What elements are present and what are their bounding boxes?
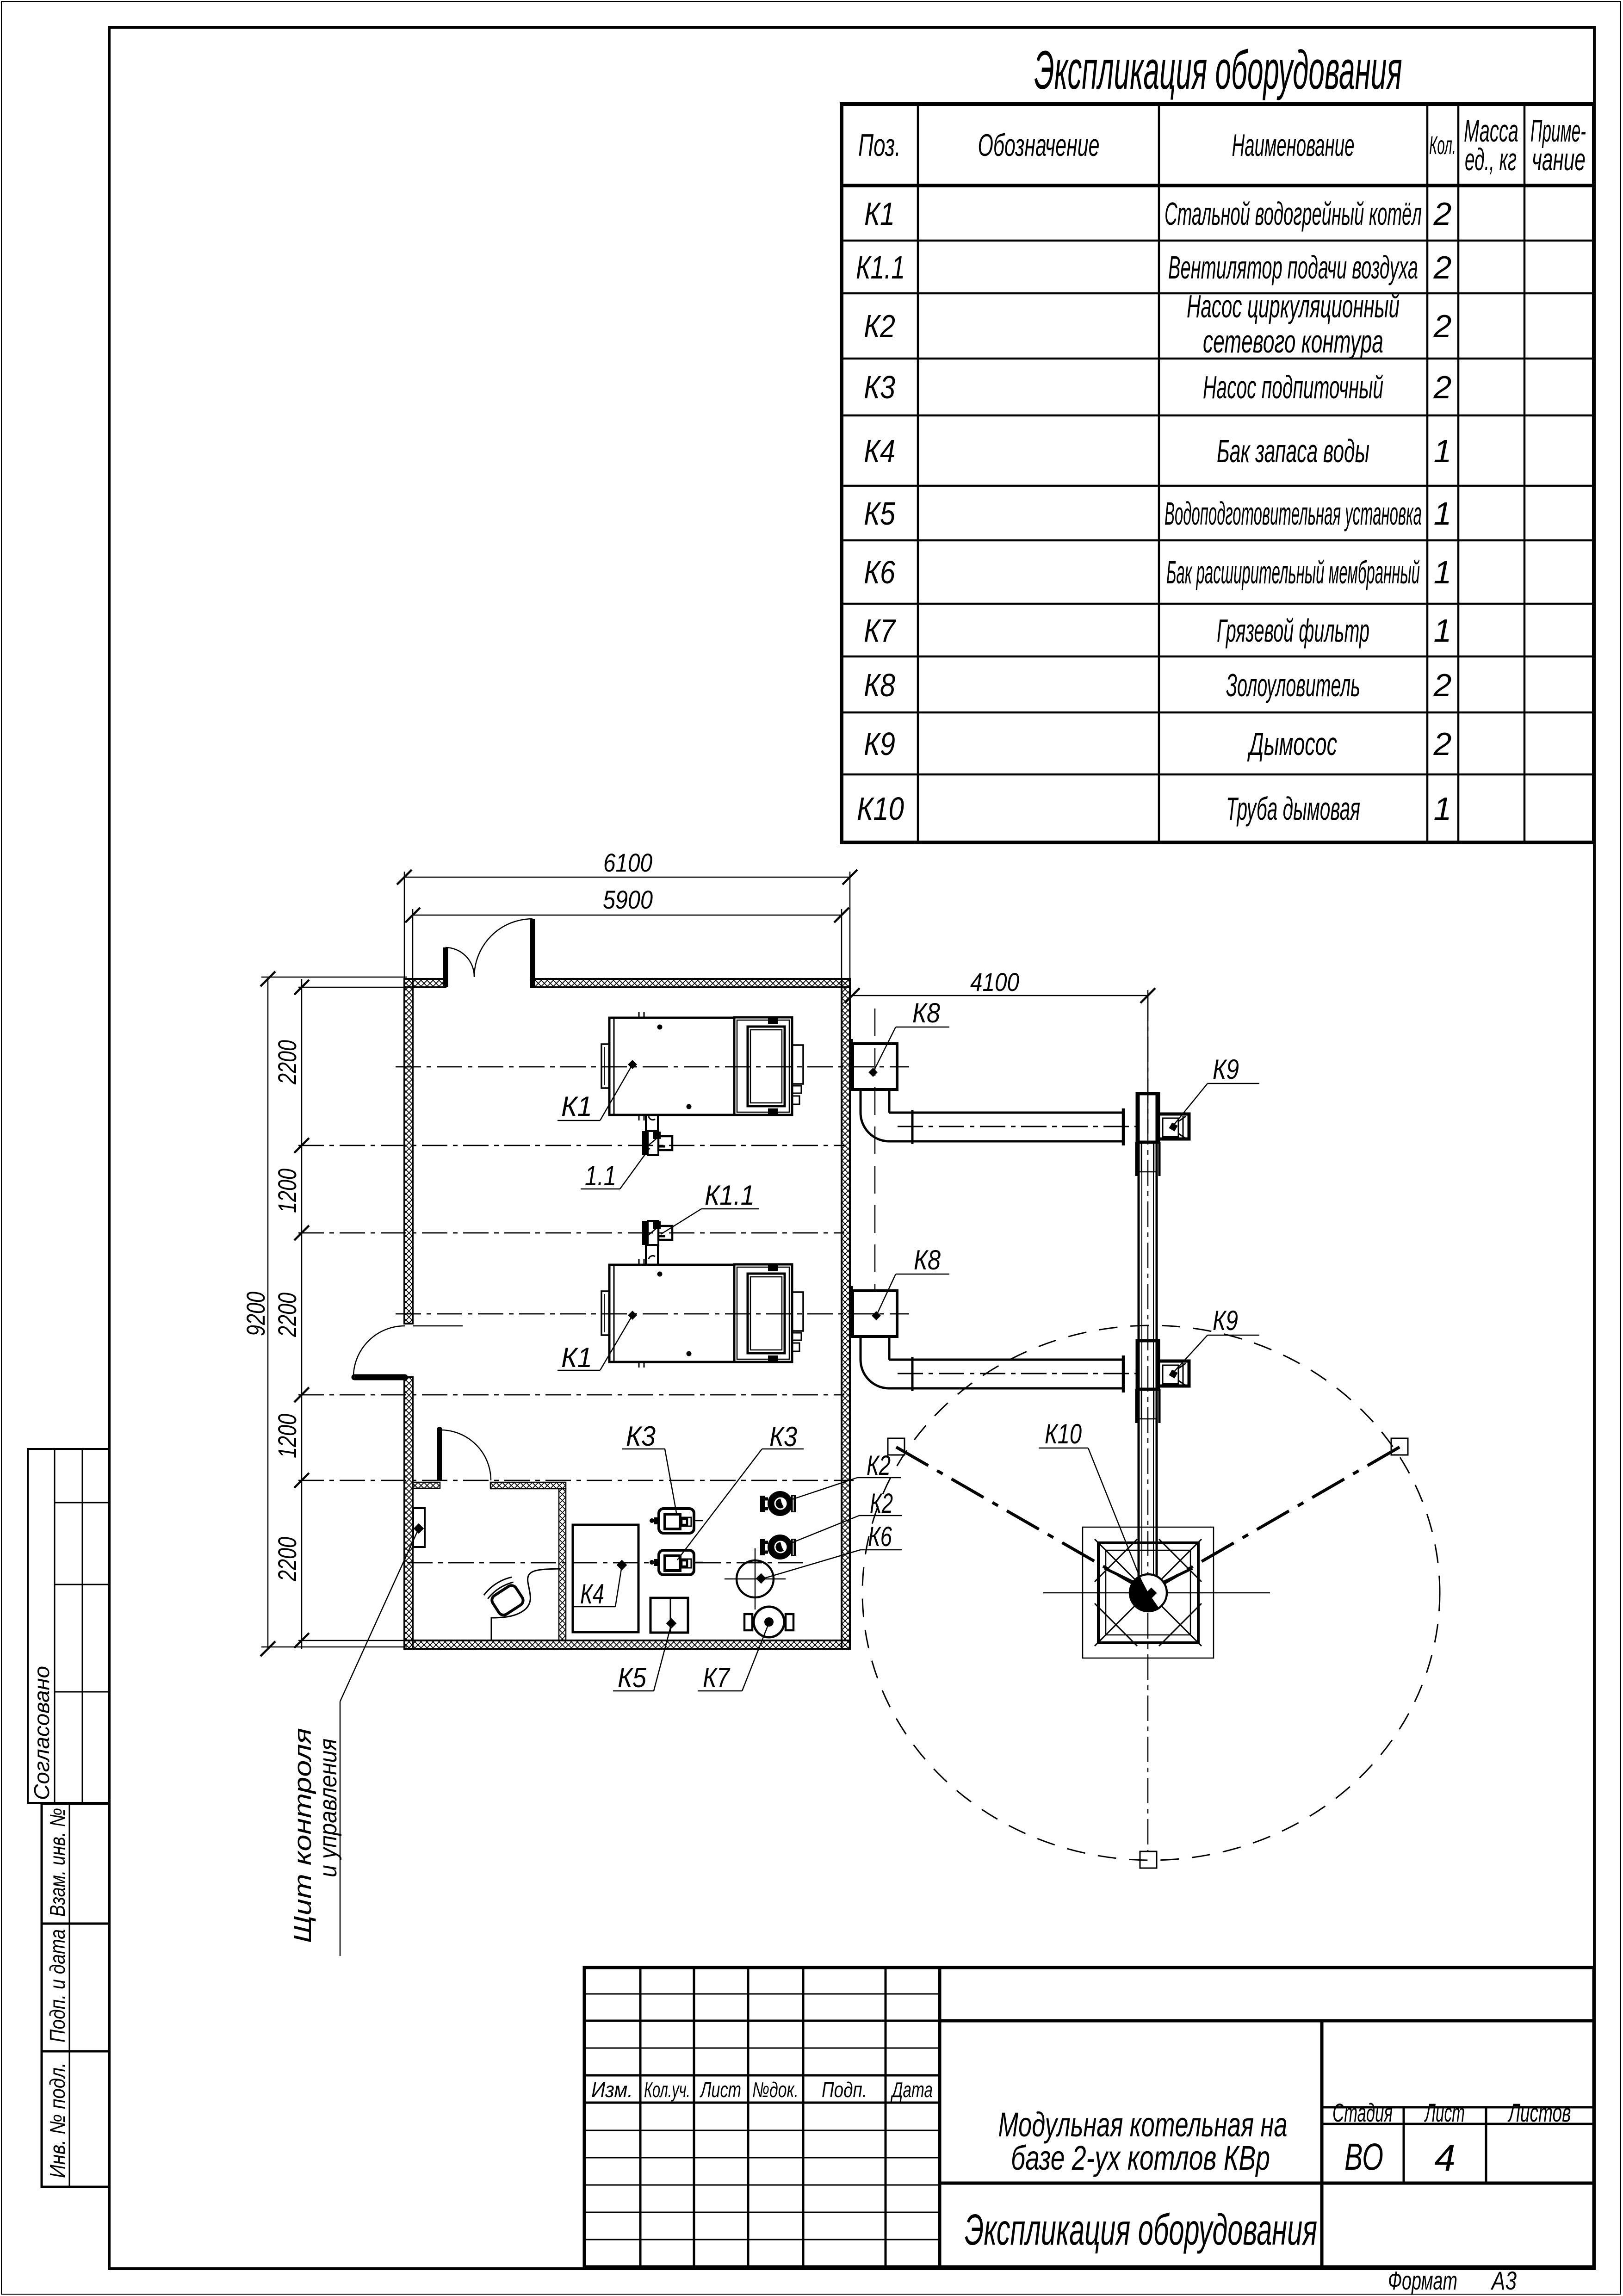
- svg-text:1: 1: [1434, 495, 1452, 532]
- svg-text:Обозначение: Обозначение: [978, 128, 1100, 163]
- svg-text:Экспликация оборудования: Экспликация оборудования: [1035, 40, 1402, 101]
- svg-text:К6: К6: [864, 554, 895, 590]
- svg-text:К4: К4: [864, 433, 895, 469]
- svg-text:2: 2: [1433, 249, 1452, 285]
- svg-text:Инв. № подл.: Инв. № подл.: [45, 2062, 69, 2178]
- svg-text:Бак расширительный мембранный: Бак расширительный мембранный: [1166, 554, 1420, 590]
- svg-text:Лист: Лист: [1424, 2098, 1465, 2127]
- svg-text:6100: 6100: [603, 848, 652, 877]
- svg-text:2: 2: [1433, 726, 1452, 762]
- svg-text:и управления: и управления: [315, 1739, 342, 1877]
- svg-text:2: 2: [1433, 308, 1452, 344]
- svg-text:2: 2: [1433, 667, 1452, 703]
- svg-text:К2: К2: [870, 1488, 893, 1519]
- svg-text:К3: К3: [864, 369, 895, 405]
- svg-text:1.1: 1.1: [585, 1160, 616, 1191]
- svg-text:Формат: Формат: [1388, 2266, 1457, 2295]
- svg-text:Бак запаса воды: Бак запаса воды: [1217, 433, 1369, 469]
- svg-text:9200: 9200: [241, 1292, 270, 1336]
- svg-text:К1: К1: [561, 1342, 592, 1373]
- svg-text:Вентилятор подачи воздуха: Вентилятор подачи воздуха: [1168, 249, 1418, 285]
- svg-text:Грязевой фильтр: Грязевой фильтр: [1217, 613, 1369, 649]
- svg-text:Дымосос: Дымосос: [1247, 726, 1337, 762]
- svg-text:Водоподготовительная установка: Водоподготовительная установка: [1165, 495, 1422, 532]
- svg-text:Насос циркуляционный: Насос циркуляционный: [1187, 288, 1400, 324]
- svg-text:К1.1: К1.1: [856, 249, 905, 285]
- svg-text:Золоуловитель: Золоуловитель: [1226, 667, 1360, 703]
- svg-text:Труба дымовая: Труба дымовая: [1226, 791, 1360, 827]
- svg-text:1: 1: [1434, 613, 1452, 649]
- svg-text:№док.: №док.: [752, 2078, 799, 2102]
- svg-text:К5: К5: [864, 495, 896, 532]
- svg-text:К10: К10: [1045, 1418, 1082, 1449]
- svg-text:К7: К7: [703, 1662, 731, 1693]
- svg-text:1200: 1200: [273, 1414, 302, 1458]
- svg-text:К9: К9: [1213, 1305, 1238, 1336]
- svg-text:К2: К2: [867, 1450, 891, 1481]
- svg-text:Поз.: Поз.: [858, 128, 901, 163]
- svg-text:4: 4: [1434, 2137, 1456, 2179]
- svg-text:ВО: ВО: [1344, 2136, 1383, 2178]
- svg-text:Экспликация оборудования: Экспликация оборудования: [965, 2205, 1317, 2254]
- svg-text:Насос подпиточный: Насос подпиточный: [1203, 369, 1383, 405]
- svg-text:1: 1: [1434, 554, 1452, 590]
- svg-text:базе 2-ух котлов КВр: базе 2-ух котлов КВр: [1011, 2139, 1270, 2177]
- svg-text:К1: К1: [864, 196, 895, 232]
- svg-text:Согласовано: Согласовано: [30, 1666, 54, 1800]
- svg-text:К3: К3: [626, 1421, 656, 1452]
- svg-text:ед., кг: ед., кг: [1465, 142, 1517, 177]
- svg-text:Подп.: Подп.: [822, 2078, 867, 2102]
- svg-text:4100: 4100: [970, 967, 1019, 996]
- svg-text:1: 1: [1434, 433, 1452, 469]
- svg-text:Взам. инв. №: Взам. инв. №: [45, 1808, 69, 1917]
- svg-text:5900: 5900: [603, 885, 653, 914]
- svg-text:Изм.: Изм.: [591, 2078, 633, 2102]
- svg-text:А3: А3: [1491, 2266, 1517, 2295]
- svg-text:К4: К4: [580, 1578, 604, 1609]
- svg-text:Подп. и дата: Подп. и дата: [45, 1929, 69, 2042]
- svg-text:Лист: Лист: [700, 2078, 741, 2102]
- svg-text:1: 1: [1434, 791, 1452, 827]
- svg-text:Кол.: Кол.: [1429, 130, 1456, 160]
- svg-text:К7: К7: [864, 613, 897, 649]
- svg-text:К2: К2: [864, 308, 895, 344]
- svg-text:чание: чание: [1532, 142, 1586, 177]
- svg-text:Стадия: Стадия: [1332, 2098, 1393, 2127]
- svg-text:К1.1: К1.1: [705, 1180, 755, 1211]
- svg-text:Кол.уч.: Кол.уч.: [644, 2078, 690, 2102]
- svg-text:Щит контроля: Щит контроля: [289, 1728, 316, 1943]
- svg-text:2: 2: [1433, 369, 1452, 405]
- svg-text:2200: 2200: [273, 1537, 302, 1582]
- svg-text:Модульная котельная на: Модульная котельная на: [998, 2105, 1288, 2144]
- svg-text:Дата: Дата: [890, 2078, 933, 2102]
- svg-text:К8: К8: [914, 1244, 941, 1275]
- svg-text:К8: К8: [864, 667, 895, 703]
- svg-text:2200: 2200: [273, 1293, 302, 1337]
- svg-text:К9: К9: [864, 726, 895, 762]
- svg-text:1200: 1200: [273, 1169, 302, 1213]
- svg-text:К1: К1: [561, 1091, 592, 1122]
- svg-text:К9: К9: [1213, 1054, 1239, 1085]
- svg-text:К5: К5: [618, 1662, 647, 1693]
- svg-text:2200: 2200: [273, 1040, 302, 1085]
- svg-text:К3: К3: [769, 1421, 797, 1452]
- svg-text:Листов: Листов: [1508, 2098, 1571, 2127]
- svg-text:К8: К8: [912, 997, 941, 1028]
- svg-text:Стальной водогрейный котёл: Стальной водогрейный котёл: [1165, 196, 1422, 232]
- svg-text:К6: К6: [868, 1521, 892, 1552]
- svg-text:сетевого контура: сетевого контура: [1203, 323, 1383, 359]
- svg-text:К10: К10: [857, 791, 904, 827]
- svg-text:Наименование: Наименование: [1232, 128, 1355, 163]
- svg-text:2: 2: [1433, 196, 1452, 232]
